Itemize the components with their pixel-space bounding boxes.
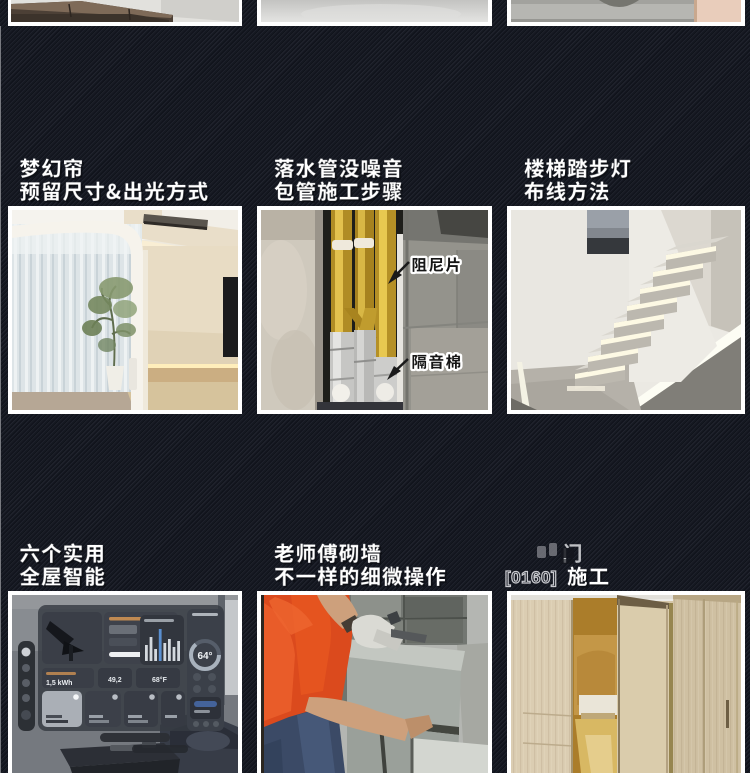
svg-text:49,2: 49,2 (108, 677, 122, 684)
svg-text:1,5 kWh: 1,5 kWh (46, 680, 72, 687)
svg-text:64°: 64° (197, 651, 212, 662)
svg-text:68°F: 68°F (152, 676, 168, 684)
